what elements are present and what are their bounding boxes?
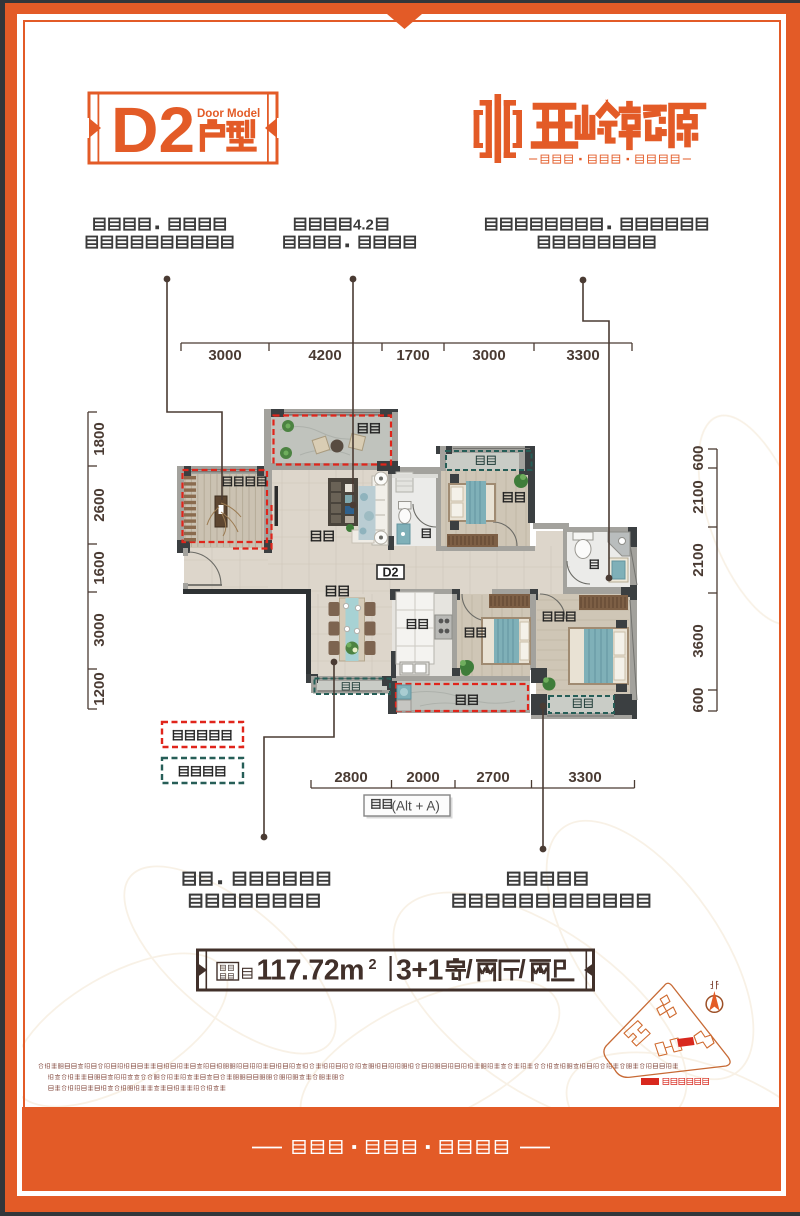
svg-text:3600: 3600 [690, 624, 707, 657]
svg-text:1600: 1600 [91, 551, 108, 584]
svg-text:117.72m: 117.72m [257, 955, 364, 987]
svg-text:3+1: 3+1 [396, 955, 443, 987]
svg-text:3300: 3300 [566, 347, 599, 364]
svg-text:2100: 2100 [690, 480, 707, 513]
svg-text:3000: 3000 [91, 613, 108, 646]
svg-text:3000: 3000 [208, 347, 241, 364]
svg-text:D2: D2 [111, 94, 195, 166]
svg-text:2700: 2700 [476, 769, 509, 786]
svg-text:600: 600 [690, 445, 707, 470]
svg-text:600: 600 [690, 687, 707, 712]
svg-text:4200: 4200 [308, 347, 341, 364]
svg-text:3300: 3300 [568, 769, 601, 786]
svg-text:2: 2 [369, 957, 377, 973]
svg-text:2000: 2000 [406, 769, 439, 786]
svg-text:D2: D2 [383, 566, 399, 580]
svg-text:(Alt + A): (Alt + A) [392, 799, 440, 814]
svg-text:Door Model: Door Model [197, 108, 260, 120]
svg-text:3000: 3000 [472, 347, 505, 364]
svg-text:1200: 1200 [91, 672, 108, 705]
svg-text:1800: 1800 [91, 422, 108, 455]
svg-text:1700: 1700 [396, 347, 429, 364]
svg-text:2600: 2600 [91, 488, 108, 521]
svg-text:/: / [519, 954, 526, 984]
svg-text:4.2: 4.2 [353, 217, 374, 234]
svg-text:2100: 2100 [690, 543, 707, 576]
svg-text:2800: 2800 [334, 769, 367, 786]
svg-text:/: / [466, 954, 473, 984]
